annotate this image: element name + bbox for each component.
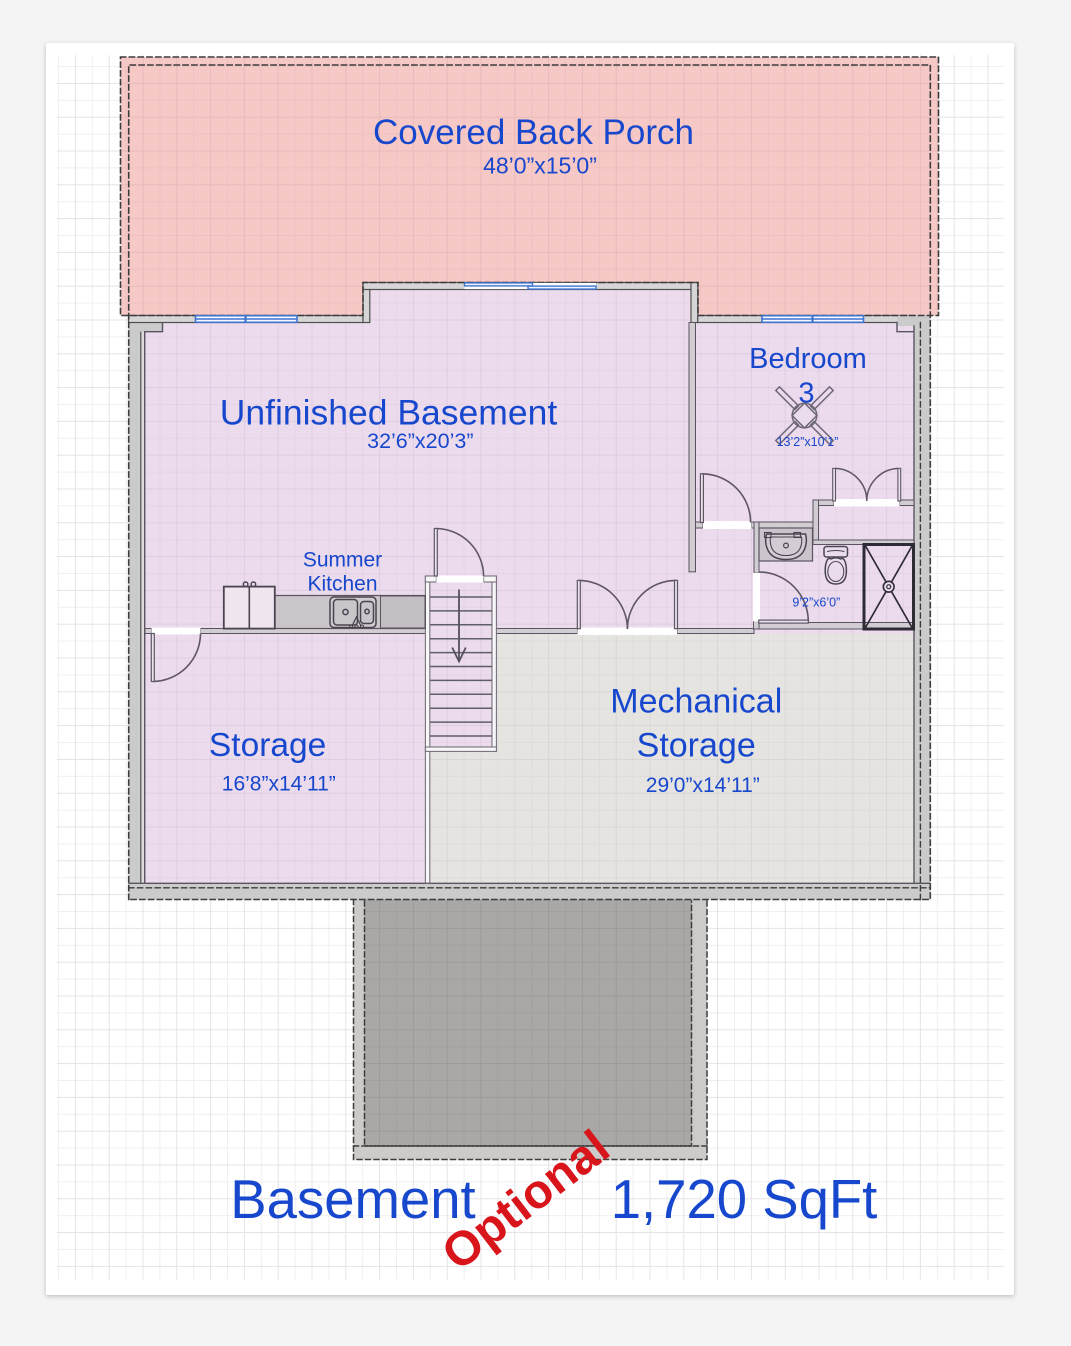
svg-text:32’6”x20’3”: 32’6”x20’3” (367, 429, 473, 453)
svg-text:Basement: Basement (230, 1169, 475, 1230)
svg-text:9’2”x6’0”: 9’2”x6’0” (792, 596, 840, 610)
svg-text:Kitchen: Kitchen (307, 573, 377, 596)
svg-text:1,720 SqFt: 1,720 SqFt (611, 1169, 878, 1230)
svg-text:Summer: Summer (303, 549, 382, 572)
svg-text:Storage: Storage (209, 727, 326, 764)
svg-text:Unfinished Basement: Unfinished Basement (220, 393, 558, 433)
svg-text:48’0”x15’0”: 48’0”x15’0” (483, 153, 597, 179)
svg-text:13’2”x10’1”: 13’2”x10’1” (777, 435, 839, 449)
svg-text:29’0”x14’11”: 29’0”x14’11” (646, 774, 760, 797)
svg-text:Mechanical: Mechanical (610, 682, 782, 720)
svg-text:3: 3 (798, 378, 814, 410)
svg-text:16’8”x14’11”: 16’8”x14’11” (222, 773, 336, 796)
svg-text:Covered Back Porch: Covered Back Porch (373, 113, 694, 152)
svg-text:Storage: Storage (637, 726, 756, 764)
svg-text:Bedroom: Bedroom (749, 343, 867, 375)
